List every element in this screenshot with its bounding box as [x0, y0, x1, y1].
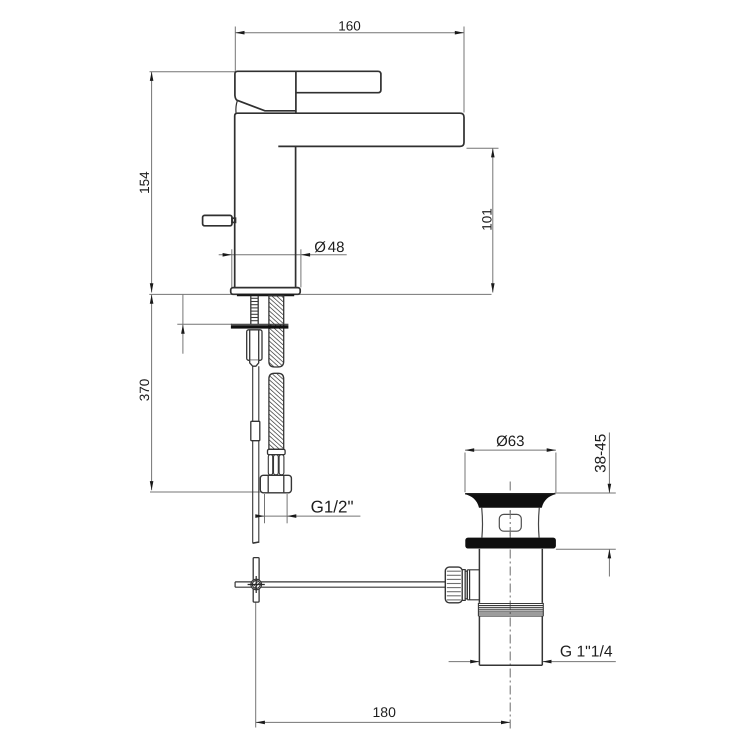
svg-text:38-45: 38-45 [593, 434, 610, 473]
svg-text:Ø63: Ø63 [496, 433, 524, 450]
svg-text:Ø48: Ø48 [314, 239, 344, 256]
svg-text:G 1"1/4: G 1"1/4 [560, 643, 613, 660]
svg-text:101: 101 [479, 208, 494, 231]
svg-text:180: 180 [373, 704, 397, 720]
svg-text:370: 370 [137, 379, 152, 402]
svg-text:154: 154 [137, 171, 152, 194]
svg-text:G1/2": G1/2" [311, 497, 354, 516]
svg-text:160: 160 [338, 18, 361, 33]
